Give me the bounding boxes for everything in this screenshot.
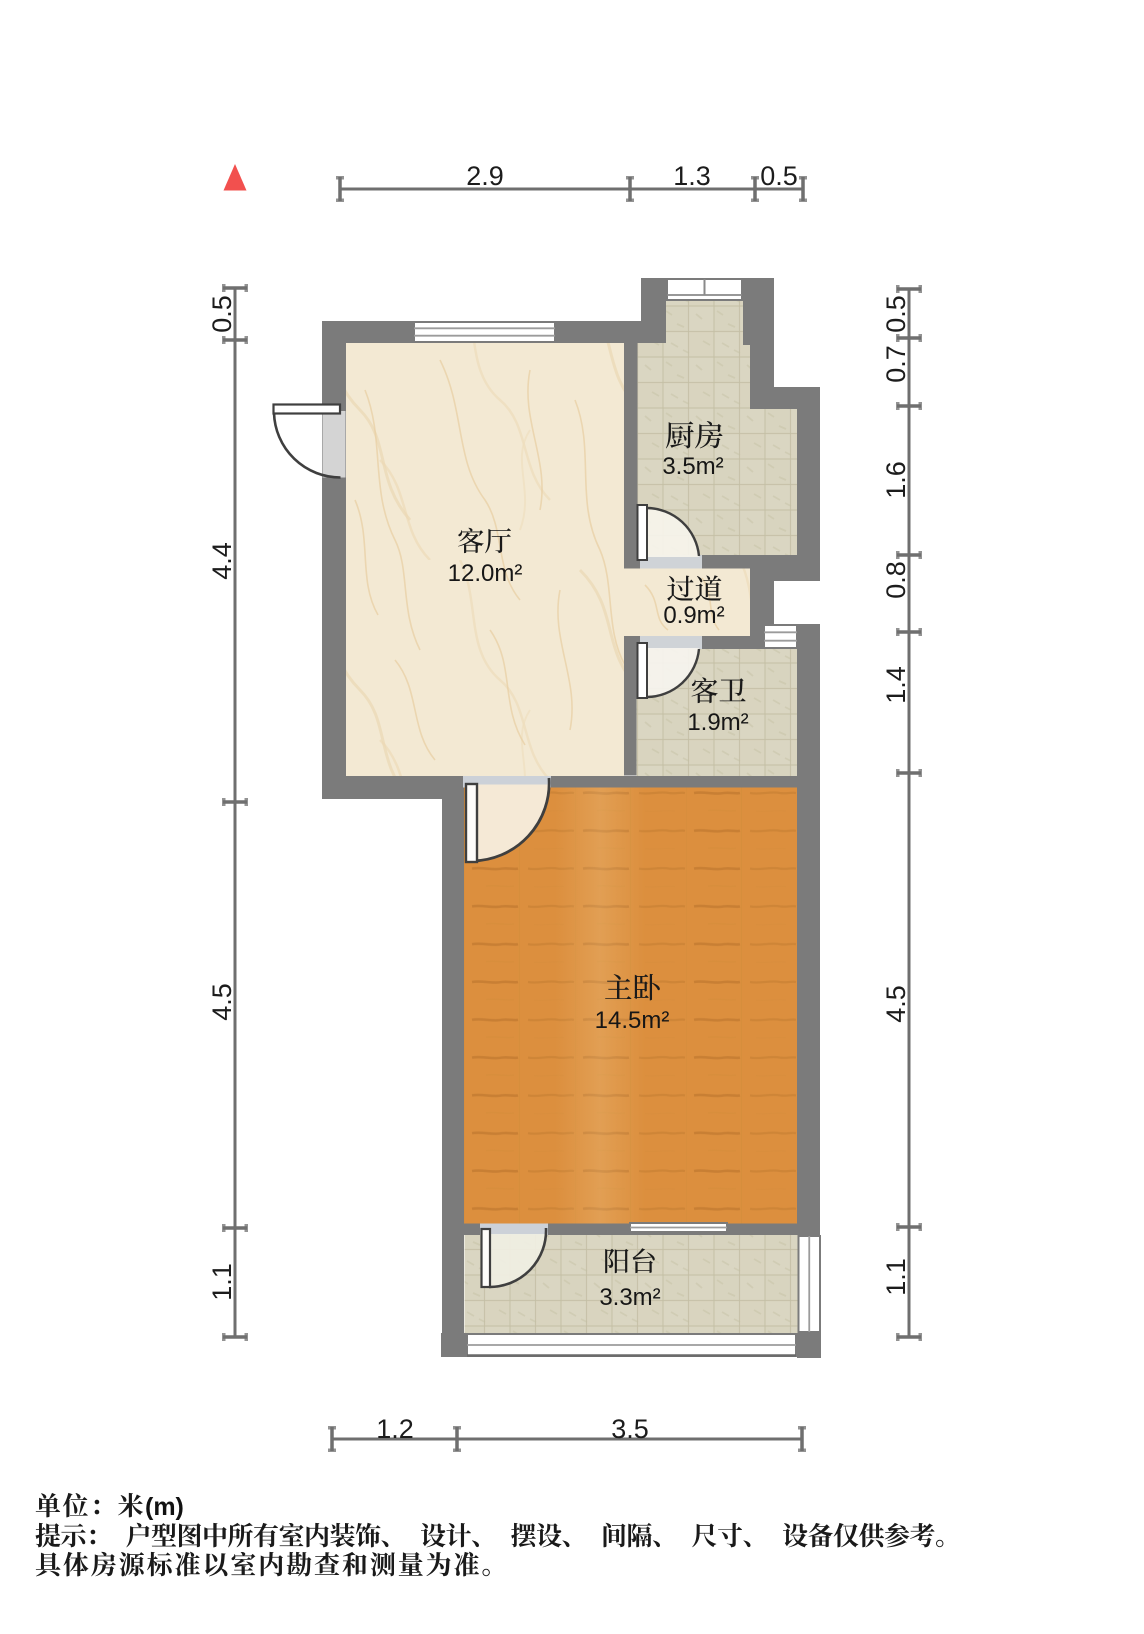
svg-text:1.1: 1.1	[881, 1258, 911, 1296]
svg-text:2.9: 2.9	[466, 161, 504, 191]
svg-text:4.4: 4.4	[207, 542, 237, 580]
svg-text:4.5: 4.5	[881, 985, 911, 1023]
svg-text:3.5m²: 3.5m²	[662, 453, 723, 480]
svg-text:0.8: 0.8	[881, 561, 911, 599]
svg-text:1.9m²: 1.9m²	[687, 709, 748, 736]
svg-text:12.0m²: 12.0m²	[448, 560, 523, 587]
svg-text:(m): (m)	[145, 1493, 184, 1521]
svg-text:0.5: 0.5	[760, 161, 798, 191]
svg-text:1.1: 1.1	[207, 1263, 237, 1301]
svg-text:0.5: 0.5	[207, 295, 237, 333]
svg-text:0.9m²: 0.9m²	[663, 602, 724, 629]
svg-text:0.5: 0.5	[881, 295, 911, 333]
svg-text:1.2: 1.2	[376, 1414, 414, 1444]
svg-text:4.5: 4.5	[207, 983, 237, 1021]
svg-text:1.6: 1.6	[881, 461, 911, 499]
svg-text:14.5m²: 14.5m²	[595, 1007, 670, 1034]
svg-text:1.4: 1.4	[881, 666, 911, 704]
svg-text:1.3: 1.3	[673, 161, 711, 191]
svg-text:3.3m²: 3.3m²	[599, 1284, 660, 1311]
svg-text:0.7: 0.7	[881, 345, 911, 383]
svg-text:3.5: 3.5	[611, 1414, 649, 1444]
